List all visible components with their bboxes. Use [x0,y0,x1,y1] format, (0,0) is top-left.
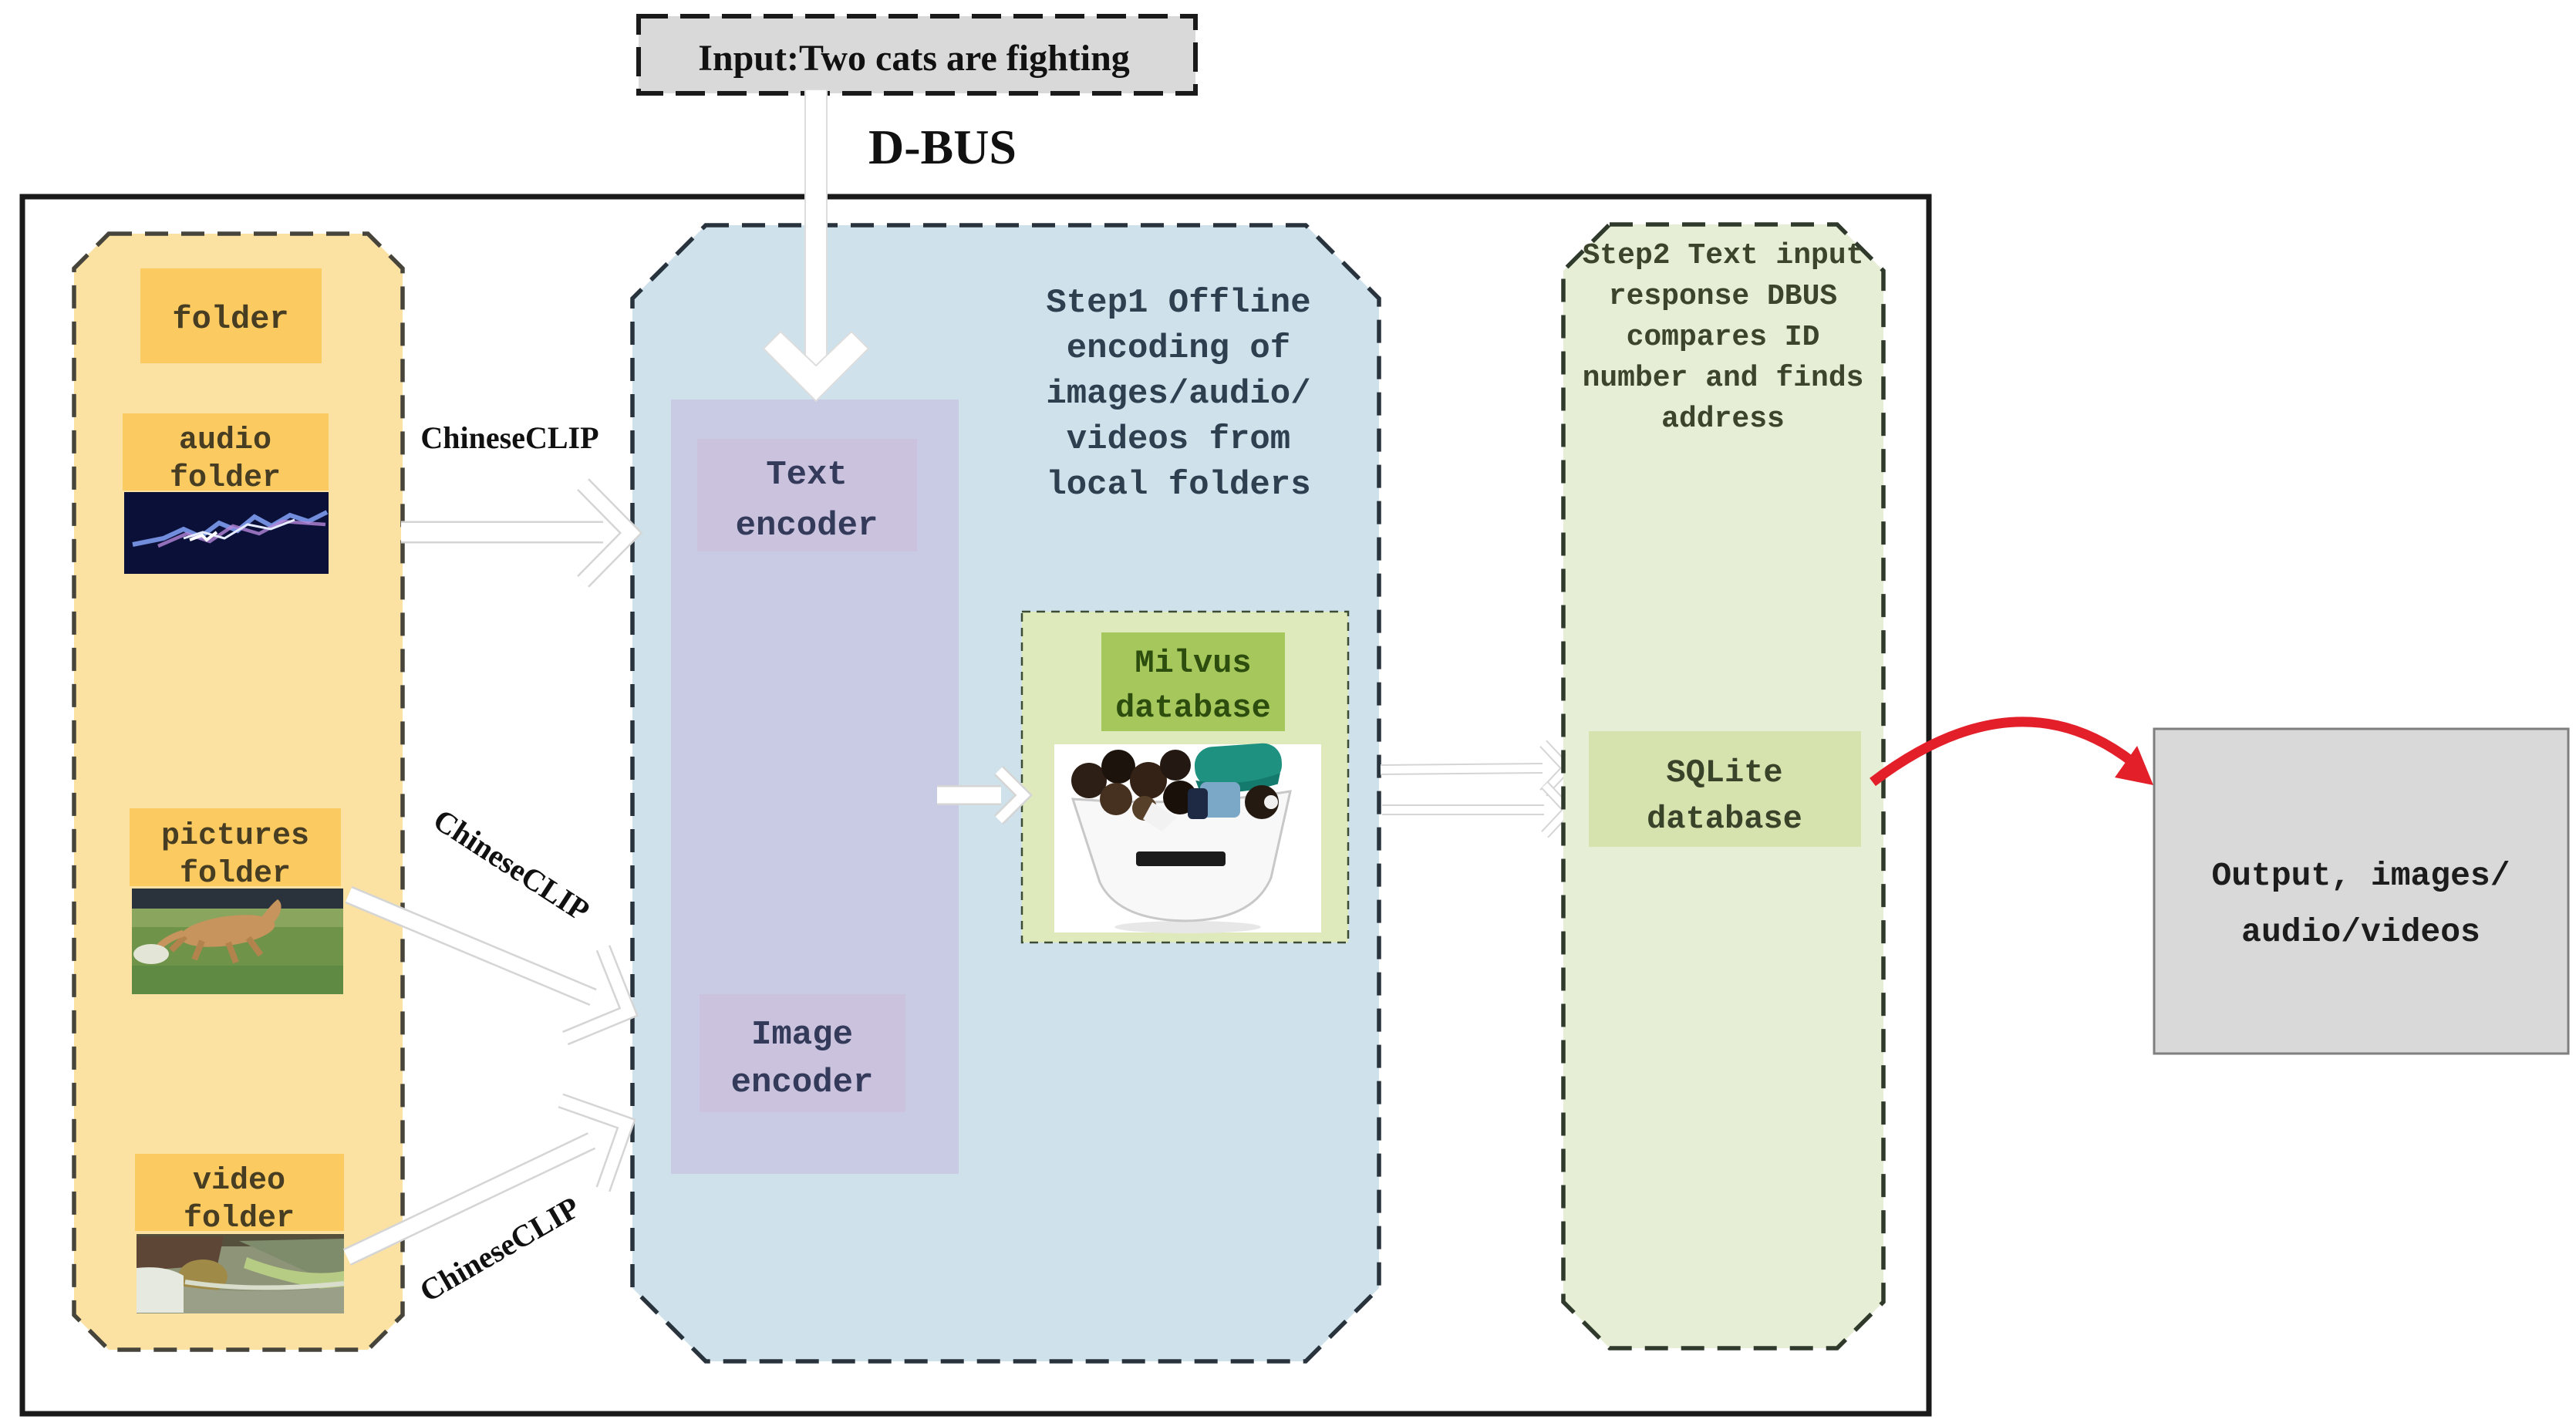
svg-text:encoder: encoder [731,1064,874,1102]
svg-text:Output, images/: Output, images/ [2211,857,2510,895]
svg-text:videos from: videos from [1067,420,1290,459]
svg-text:response DBUS: response DBUS [1609,280,1837,313]
svg-text:Text: Text [766,456,848,494]
svg-text:number and finds: number and finds [1583,362,1864,395]
svg-text:encoding of: encoding of [1067,329,1290,368]
svg-text:audio/videos: audio/videos [2241,913,2480,951]
svg-text:database: database [1115,690,1271,727]
svg-text:folder: folder [184,1202,295,1236]
svg-text:folder: folder [172,301,288,338]
svg-text:Step2 Text input: Step2 Text input [1583,239,1864,272]
svg-text:encoder: encoder [736,507,878,545]
svg-text:D-BUS: D-BUS [868,120,1017,174]
svg-text:database: database [1647,801,1802,838]
svg-text:address: address [1661,403,1785,436]
svg-text:Milvus: Milvus [1135,645,1251,682]
svg-text:Image: Image [751,1016,853,1054]
svg-text:Input:Two cats are fighting: Input:Two cats are fighting [698,38,1130,79]
svg-text:local folders: local folders [1046,466,1310,504]
svg-text:images/audio/: images/audio/ [1046,375,1310,413]
svg-text:ChineseCLIP: ChineseCLIP [420,420,598,455]
svg-text:pictures: pictures [161,819,309,854]
svg-text:Step1 Offline: Step1 Offline [1046,284,1310,322]
svg-text:folder: folder [180,857,291,892]
svg-text:SQLite: SQLite [1666,754,1782,791]
svg-text:audio: audio [179,423,271,458]
svg-text:compares ID: compares ID [1627,321,1820,354]
svg-text:video: video [193,1164,285,1199]
svg-text:folder: folder [170,461,281,496]
